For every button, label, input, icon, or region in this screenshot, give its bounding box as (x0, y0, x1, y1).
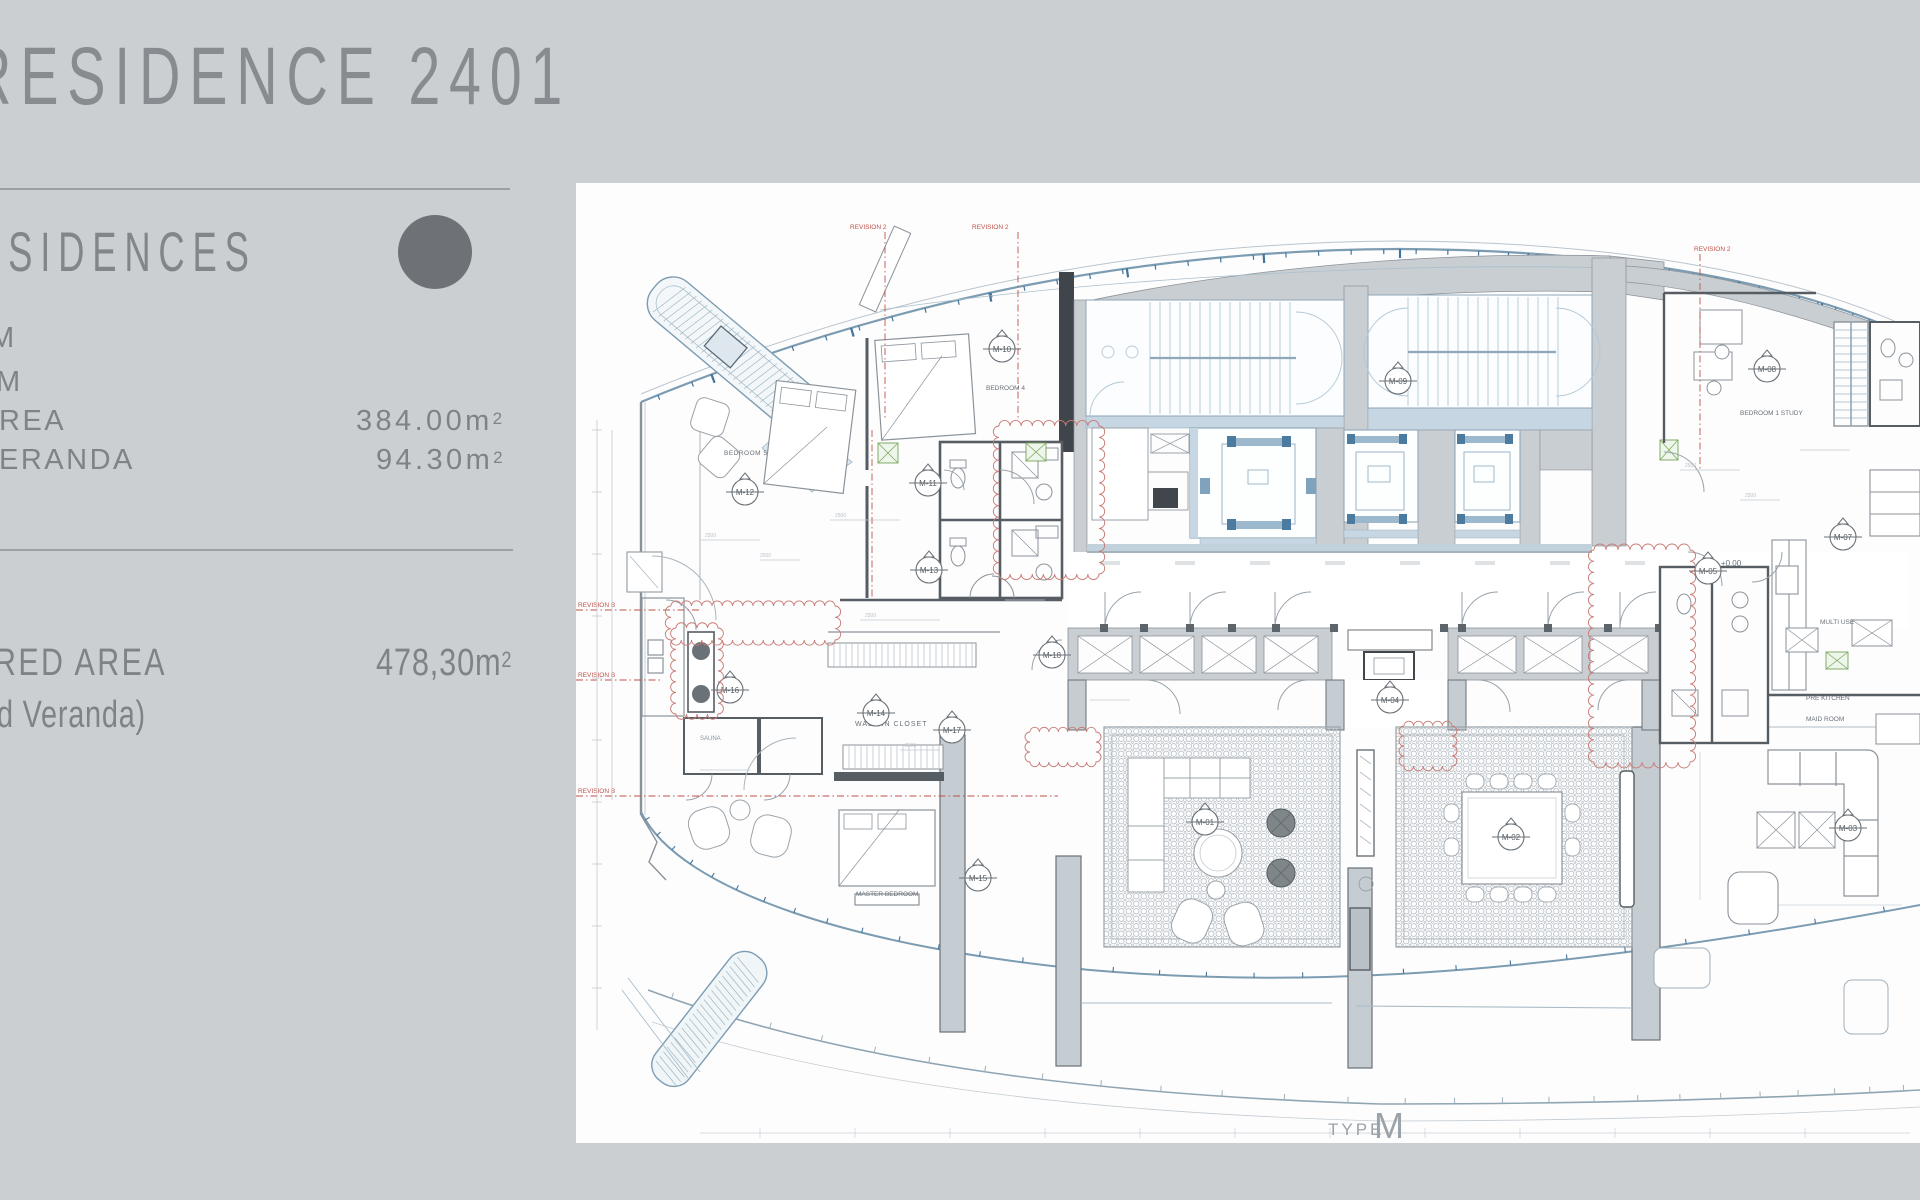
svg-text:M-02: M-02 (1502, 833, 1521, 842)
svg-text:2500: 2500 (760, 553, 771, 559)
svg-text:REVISION 2: REVISION 2 (972, 224, 1009, 231)
svg-text:MULTI USE: MULTI USE (1820, 619, 1855, 626)
svg-text:MAID ROOM: MAID ROOM (1806, 716, 1844, 723)
svg-text:M-07: M-07 (1834, 533, 1853, 542)
svg-text:SAUNA: SAUNA (700, 736, 721, 742)
svg-text:M: M (1374, 1105, 1404, 1146)
svg-text:REVISION 2: REVISION 2 (1694, 246, 1731, 253)
svg-text:PRE KITCHEN: PRE KITCHEN (1806, 695, 1850, 702)
svg-text:BEDROOM 5: BEDROOM 5 (724, 450, 768, 457)
svg-text:2500: 2500 (705, 533, 716, 539)
svg-text:M-04: M-04 (1381, 696, 1400, 705)
svg-text:M-13: M-13 (920, 566, 939, 575)
svg-text:M-17: M-17 (943, 726, 962, 735)
svg-text:BEDROOM 1 STUDY: BEDROOM 1 STUDY (1740, 410, 1804, 417)
svg-text:WALK IN CLOSET: WALK IN CLOSET (855, 721, 927, 728)
svg-text:BEDROOM 4: BEDROOM 4 (986, 385, 1025, 392)
svg-text:M-08: M-08 (1758, 365, 1777, 374)
svg-text:M-11: M-11 (919, 479, 937, 488)
svg-text:M-05: M-05 (1699, 567, 1718, 576)
svg-text:M-03: M-03 (1839, 824, 1858, 833)
svg-text:2500: 2500 (1745, 493, 1756, 499)
svg-text:M-10: M-10 (993, 345, 1012, 354)
svg-text:2500: 2500 (905, 743, 916, 749)
svg-text:M-09: M-09 (1389, 377, 1408, 386)
svg-text:M-18: M-18 (1043, 651, 1062, 660)
svg-text:MASTER BEDROOM: MASTER BEDROOM (856, 891, 918, 898)
svg-text:REVISION 2: REVISION 2 (850, 224, 887, 231)
svg-text:M-01: M-01 (1196, 818, 1215, 827)
svg-text:2500: 2500 (835, 513, 846, 519)
svg-text:2500: 2500 (1685, 463, 1696, 469)
svg-text:2500: 2500 (865, 613, 876, 619)
svg-text:M-14: M-14 (867, 709, 886, 718)
svg-text:M-15: M-15 (969, 874, 988, 883)
svg-text:M-12: M-12 (736, 488, 755, 497)
